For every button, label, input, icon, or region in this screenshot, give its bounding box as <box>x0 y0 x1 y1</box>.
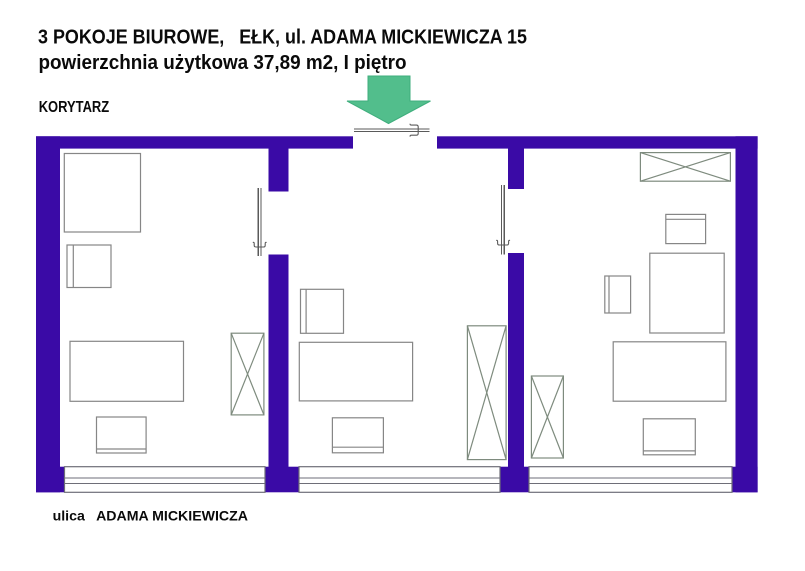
svg-text:ulica ADAMA MICKIEWICZA: ulica ADAMA MICKIEWICZA <box>53 509 249 524</box>
svg-text:powierzchnia użytkowa 37,89 m2: powierzchnia użytkowa 37,89 m2, I piętro <box>39 52 407 74</box>
svg-text:3 POKOJE BIUROWE, EŁK, ul. A: 3 POKOJE BIUROWE, EŁK, ul. ADAMA MICKIEW… <box>38 26 527 48</box>
svg-text:KORYTARZ: KORYTARZ <box>39 99 110 116</box>
